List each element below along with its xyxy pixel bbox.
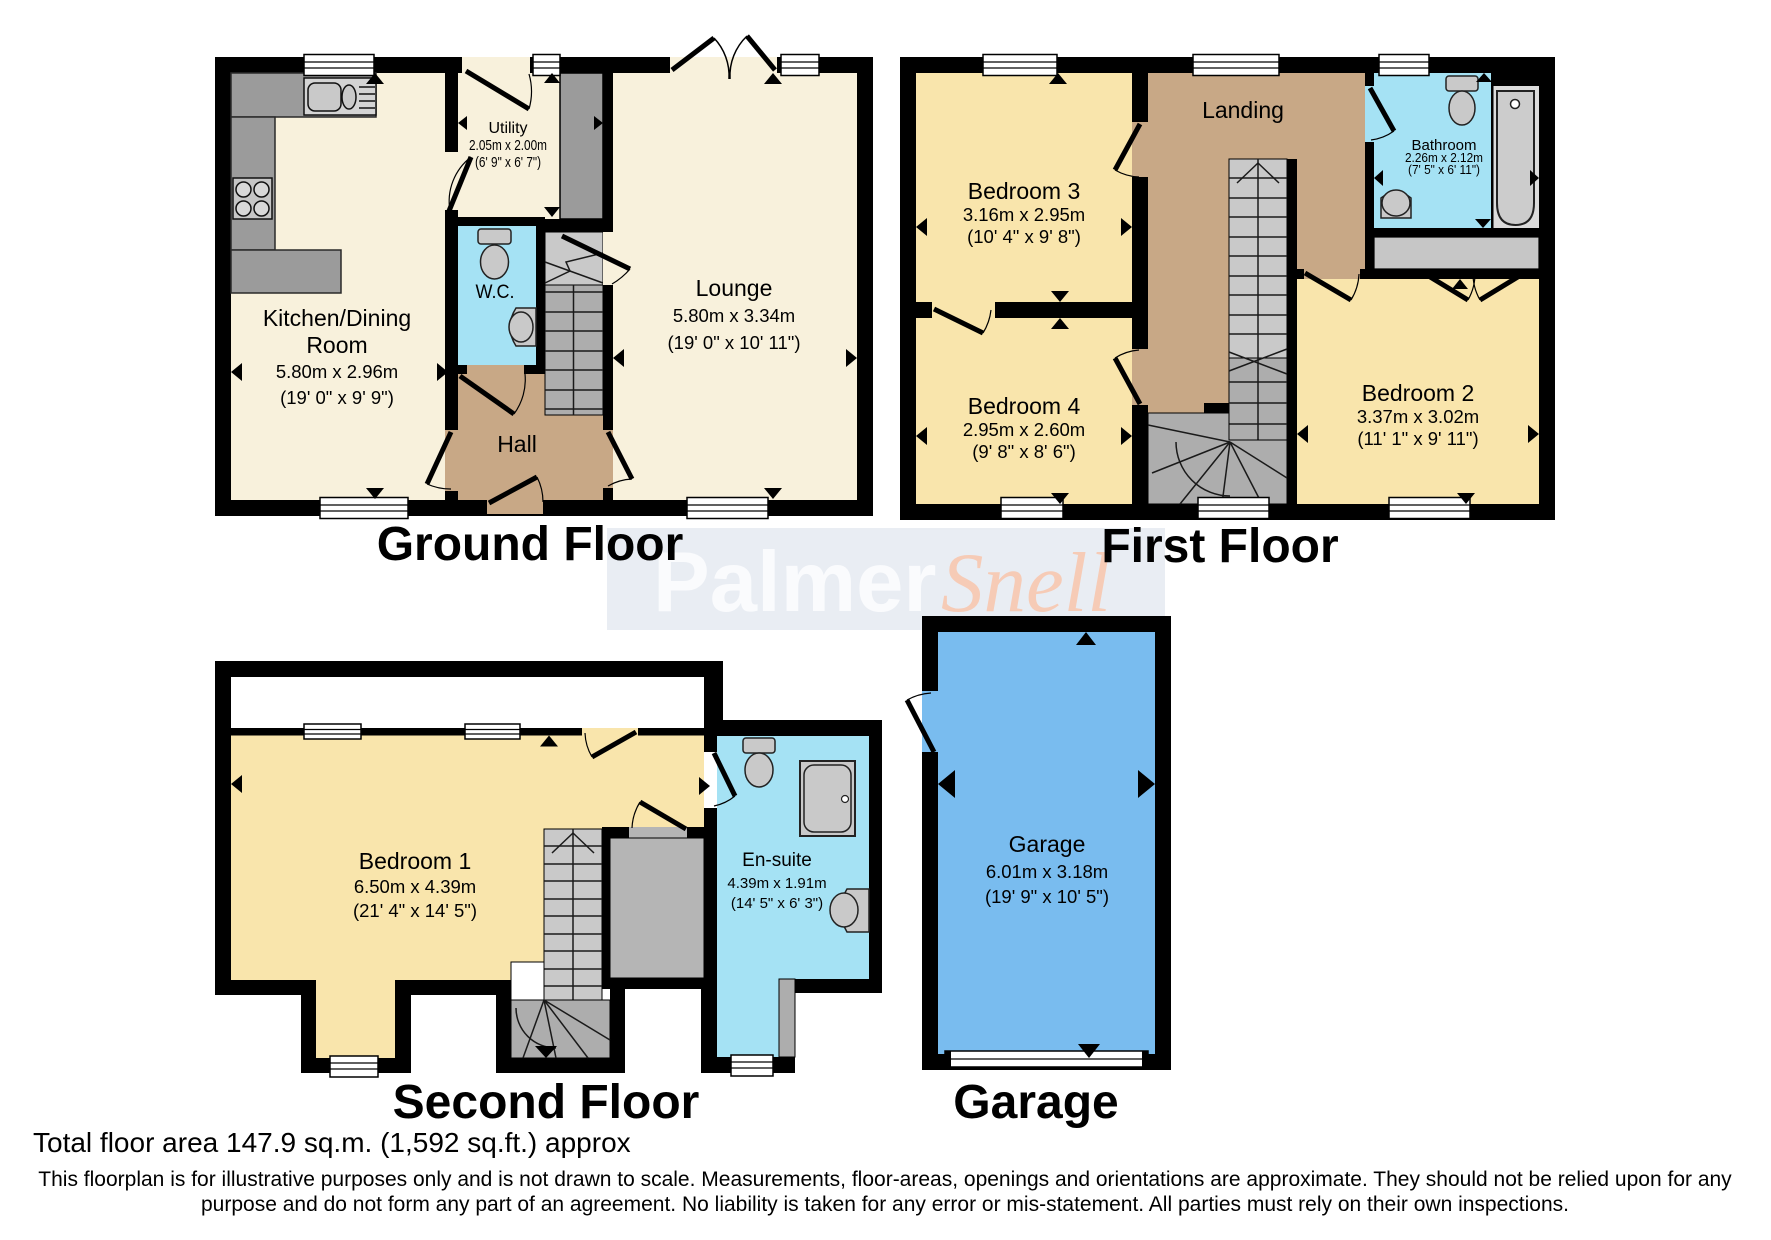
- svg-text:Snell: Snell: [941, 536, 1111, 630]
- svg-text:Palmer: Palmer: [653, 535, 937, 630]
- svg-text:6.01m x 3.18m: 6.01m x 3.18m: [986, 861, 1108, 882]
- svg-text:(21' 4" x 14' 5"): (21' 4" x 14' 5"): [353, 900, 477, 921]
- svg-text:Garage: Garage: [1009, 831, 1086, 857]
- svg-text:3.37m x 3.02m: 3.37m x 3.02m: [1357, 406, 1479, 427]
- svg-text:5.80m x 2.96m: 5.80m x 2.96m: [276, 361, 398, 382]
- svg-text:Ground Floor: Ground Floor: [377, 518, 684, 571]
- svg-text:Bedroom 1: Bedroom 1: [359, 848, 472, 874]
- svg-text:Garage: Garage: [953, 1076, 1118, 1129]
- svg-text:Room: Room: [306, 332, 367, 358]
- svg-text:This floorplan is for illustra: This floorplan is for illustrative purpo…: [38, 1168, 1732, 1191]
- svg-text:3.16m x 2.95m: 3.16m x 2.95m: [963, 204, 1085, 225]
- svg-text:(19' 9" x 10' 5"): (19' 9" x 10' 5"): [985, 886, 1109, 907]
- svg-text:(19' 0" x 9' 9"): (19' 0" x 9' 9"): [280, 387, 394, 408]
- svg-text:6.50m x 4.39m: 6.50m x 4.39m: [354, 876, 476, 897]
- svg-text:(9' 8" x 8' 6"): (9' 8" x 8' 6"): [972, 441, 1075, 462]
- svg-text:Lounge: Lounge: [696, 275, 773, 301]
- svg-text:First Floor: First Floor: [1101, 520, 1338, 573]
- svg-text:Bedroom 4: Bedroom 4: [968, 393, 1081, 419]
- svg-text:2.95m x 2.60m: 2.95m x 2.60m: [963, 419, 1085, 440]
- svg-text:(7' 5" x 6' 11"): (7' 5" x 6' 11"): [1408, 162, 1480, 177]
- svg-text:Total floor area 147.9 sq.m. (: Total floor area 147.9 sq.m. (1,592 sq.f…: [33, 1127, 631, 1158]
- svg-text:(14' 5" x 6' 3"): (14' 5" x 6' 3"): [731, 895, 823, 912]
- svg-text:Landing: Landing: [1202, 97, 1284, 123]
- svg-text:Second Floor: Second Floor: [393, 1076, 700, 1129]
- svg-text:Bedroom 3: Bedroom 3: [968, 178, 1081, 204]
- svg-text:Kitchen/Dining: Kitchen/Dining: [263, 305, 411, 331]
- svg-text:(11' 1" x 9' 11"): (11' 1" x 9' 11"): [1357, 428, 1478, 449]
- svg-text:En-suite: En-suite: [742, 850, 812, 871]
- svg-text:(19' 0" x 10' 11"): (19' 0" x 10' 11"): [668, 332, 801, 353]
- svg-text:Bedroom 2: Bedroom 2: [1362, 380, 1475, 406]
- svg-text:(10' 4" x 9' 8"): (10' 4" x 9' 8"): [967, 226, 1081, 247]
- svg-text:(6' 9" x 6' 7"): (6' 9" x 6' 7"): [475, 154, 541, 171]
- svg-text:5.80m x 3.34m: 5.80m x 3.34m: [673, 305, 795, 326]
- svg-text:Hall: Hall: [497, 431, 537, 457]
- svg-text:Utility: Utility: [488, 120, 527, 137]
- svg-text:W.C.: W.C.: [476, 282, 515, 303]
- svg-text:purpose and do not form any pa: purpose and do not form any part of an a…: [201, 1193, 1569, 1216]
- svg-text:2.05m x 2.00m: 2.05m x 2.00m: [469, 137, 547, 154]
- svg-text:4.39m x 1.91m: 4.39m x 1.91m: [727, 875, 826, 892]
